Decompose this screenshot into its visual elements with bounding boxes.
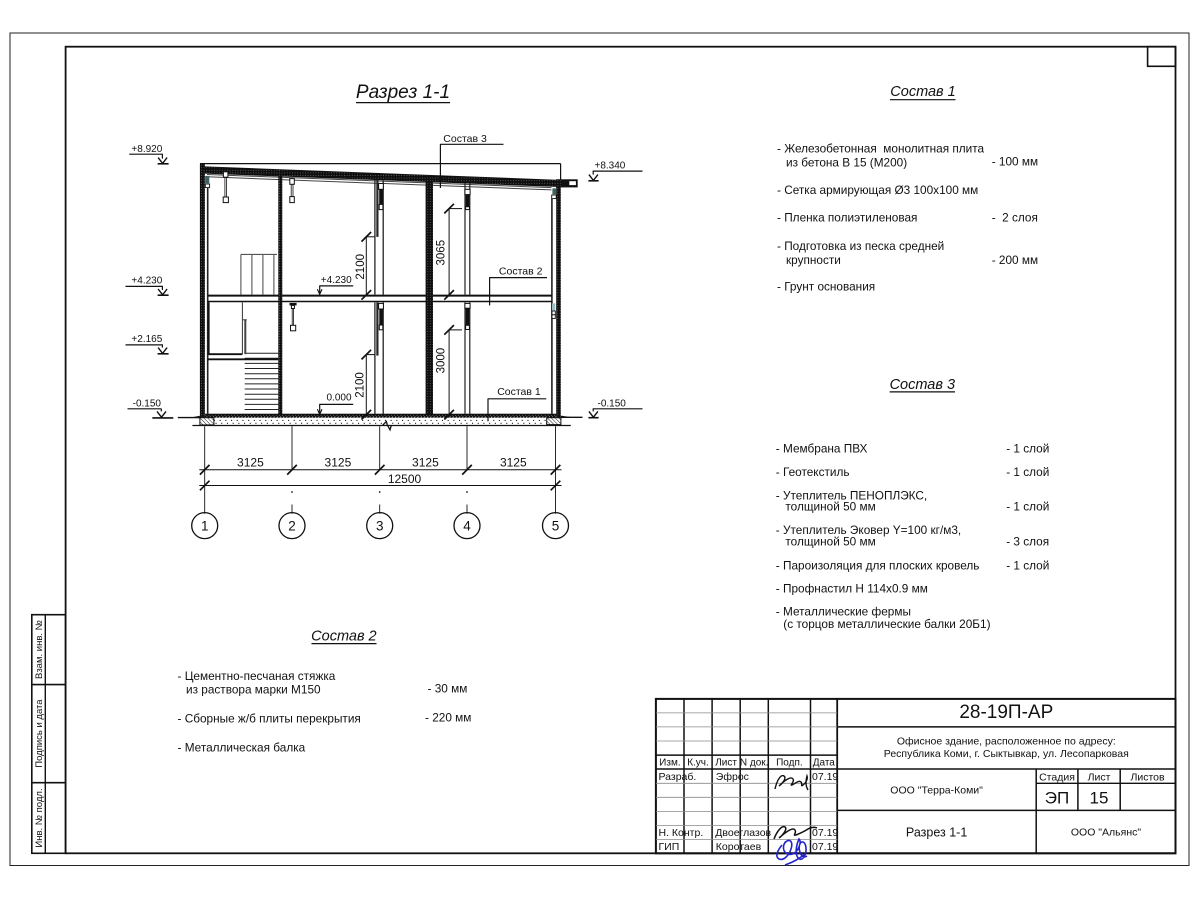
svg-text:- Профнастил Н 114х0.9 мм: - Профнастил Н 114х0.9 мм bbox=[776, 582, 928, 596]
svg-text:- Пароизоляция для плоских кро: - Пароизоляция для плоских кровель bbox=[776, 559, 980, 573]
svg-text:Стадия: Стадия bbox=[1039, 772, 1075, 784]
svg-text:толщиной 50 мм: толщиной 50 мм bbox=[785, 535, 875, 549]
svg-text:- 30 мм: - 30 мм bbox=[428, 682, 468, 696]
svg-text:из бетона В 15 (М200): из бетона В 15 (М200) bbox=[786, 156, 907, 170]
svg-text:Подпись и дата: Подпись и дата bbox=[34, 699, 45, 768]
svg-text:3: 3 bbox=[376, 518, 384, 533]
svg-text:из раствора марки М150: из раствора марки М150 bbox=[186, 683, 321, 697]
svg-text:- 220 мм: - 220 мм bbox=[425, 711, 471, 725]
svg-text:- Сетка армирующая Ø3 100х100: - Сетка армирующая Ø3 100х100 мм bbox=[777, 183, 978, 197]
svg-text:Разрез 1-1: Разрез 1-1 bbox=[906, 826, 967, 840]
svg-text:07.19: 07.19 bbox=[812, 771, 838, 783]
svg-text:3125: 3125 bbox=[500, 456, 527, 470]
svg-text:К.уч.: К.уч. bbox=[687, 758, 709, 769]
svg-text:3125: 3125 bbox=[237, 456, 264, 470]
svg-text:- 2 слоя: - 2 слоя bbox=[992, 211, 1038, 225]
svg-text:Офисное здание, расположенное: Офисное здание, расположенное по адресу: bbox=[897, 736, 1116, 748]
svg-text:(с торцов металлические балки: (с торцов металлические балки 20Б1) bbox=[783, 617, 990, 631]
svg-text:- Подготовка из песка средней: - Подготовка из песка средней bbox=[777, 239, 944, 253]
svg-text:Состав 3: Состав 3 bbox=[890, 377, 955, 393]
svg-text:3065: 3065 bbox=[436, 240, 448, 266]
svg-text:+4.230: +4.230 bbox=[131, 275, 162, 286]
svg-text:Разраб.: Разраб. bbox=[659, 771, 697, 783]
svg-text:- Цементно-песчаная стяжка: - Цементно-песчаная стяжка bbox=[178, 669, 336, 683]
svg-text:- Металлическая балка: - Металлическая балка bbox=[178, 741, 306, 755]
svg-text:Коротаев: Коротаев bbox=[716, 841, 762, 853]
svg-text:- Геотекстиль: - Геотекстиль bbox=[776, 465, 850, 479]
svg-text:ГИП: ГИП bbox=[659, 841, 680, 853]
svg-text:+8.340: +8.340 bbox=[595, 160, 626, 171]
svg-text:- Пленка полиэтиленовая: - Пленка полиэтиленовая bbox=[777, 211, 917, 225]
svg-text:- 3 слоя: - 3 слоя bbox=[1006, 535, 1049, 549]
svg-text:- Мембрана ПВХ: - Мембрана ПВХ bbox=[776, 442, 868, 456]
svg-text:Н. Контр.: Н. Контр. bbox=[659, 827, 704, 839]
svg-text:Состав 1: Состав 1 bbox=[497, 386, 541, 398]
svg-text:Разрез 1-1: Разрез 1-1 bbox=[356, 82, 450, 103]
svg-text:Республика Коми, г. Сыктывкар,: Республика Коми, г. Сыктывкар, ул. Лесоп… bbox=[884, 748, 1129, 760]
svg-text:ЭП: ЭП bbox=[1045, 789, 1069, 808]
svg-text:- 200 мм: - 200 мм bbox=[992, 253, 1038, 267]
svg-text:- Сборные ж/б плиты перекрытия: - Сборные ж/б плиты перекрытия bbox=[178, 712, 361, 726]
svg-text:Дата: Дата bbox=[813, 758, 836, 769]
svg-text:Состав 1: Состав 1 bbox=[890, 84, 955, 100]
svg-text:4: 4 bbox=[463, 518, 471, 533]
svg-text:Листов: Листов bbox=[1130, 772, 1165, 784]
svg-text:крупности: крупности bbox=[786, 253, 841, 267]
svg-text:Состав 2: Состав 2 bbox=[499, 265, 543, 277]
svg-text:ООО "Терра-Коми": ООО "Терра-Коми" bbox=[890, 785, 983, 797]
svg-text:- Железобетонная монолитная п: - Железобетонная монолитная плита bbox=[777, 142, 985, 156]
svg-text:Эфрос: Эфрос bbox=[716, 771, 749, 783]
svg-text:+4.230: +4.230 bbox=[321, 275, 352, 286]
svg-text:07.19: 07.19 bbox=[812, 827, 838, 839]
svg-text:-0.150: -0.150 bbox=[133, 398, 162, 409]
svg-text:15: 15 bbox=[1090, 789, 1109, 808]
svg-text:Инв. № подл.: Инв. № подл. bbox=[34, 788, 45, 847]
svg-text:- 1 слой: - 1 слой bbox=[1006, 465, 1049, 479]
svg-text:Двоеглазов: Двоеглазов bbox=[715, 827, 771, 839]
svg-text:Взам. инв. №: Взам. инв. № bbox=[34, 620, 45, 679]
svg-text:толщиной 50 мм: толщиной 50 мм bbox=[785, 500, 875, 514]
svg-text:Лист: Лист bbox=[1088, 772, 1111, 784]
svg-text:1: 1 bbox=[201, 518, 209, 533]
svg-text:12500: 12500 bbox=[388, 472, 422, 486]
svg-text:3125: 3125 bbox=[325, 456, 352, 470]
svg-text:N док.: N док. bbox=[740, 758, 769, 769]
svg-text:-0.150: -0.150 bbox=[598, 398, 627, 409]
svg-text:2100: 2100 bbox=[355, 254, 367, 280]
svg-text:2: 2 bbox=[288, 518, 296, 533]
svg-text:- 1 слой: - 1 слой bbox=[1006, 442, 1049, 456]
svg-text:Изм.: Изм. bbox=[659, 758, 680, 769]
svg-text:- 1 слой: - 1 слой bbox=[1006, 559, 1049, 573]
svg-text:3125: 3125 bbox=[412, 456, 439, 470]
svg-text:0.000: 0.000 bbox=[327, 392, 352, 403]
svg-text:2100: 2100 bbox=[354, 372, 366, 398]
svg-text:Состав 3: Состав 3 bbox=[443, 133, 487, 145]
svg-text:5: 5 bbox=[552, 518, 560, 533]
svg-text:28-19П-АР: 28-19П-АР bbox=[959, 702, 1053, 723]
svg-text:07.19: 07.19 bbox=[812, 841, 838, 853]
svg-text:- Грунт основания: - Грунт основания bbox=[777, 280, 875, 294]
svg-text:3000: 3000 bbox=[436, 348, 448, 374]
svg-text:Лист: Лист bbox=[715, 758, 737, 769]
svg-text:Состав 2: Состав 2 bbox=[311, 628, 376, 644]
svg-text:ООО "Альянс": ООО "Альянс" bbox=[1071, 827, 1141, 839]
svg-text:+2.165: +2.165 bbox=[131, 334, 162, 345]
svg-text:- 1 слой: - 1 слой bbox=[1006, 500, 1049, 514]
svg-text:+8.920: +8.920 bbox=[131, 144, 162, 155]
svg-text:Подп.: Подп. bbox=[776, 758, 803, 769]
svg-text:- 100 мм: - 100 мм bbox=[992, 155, 1038, 169]
